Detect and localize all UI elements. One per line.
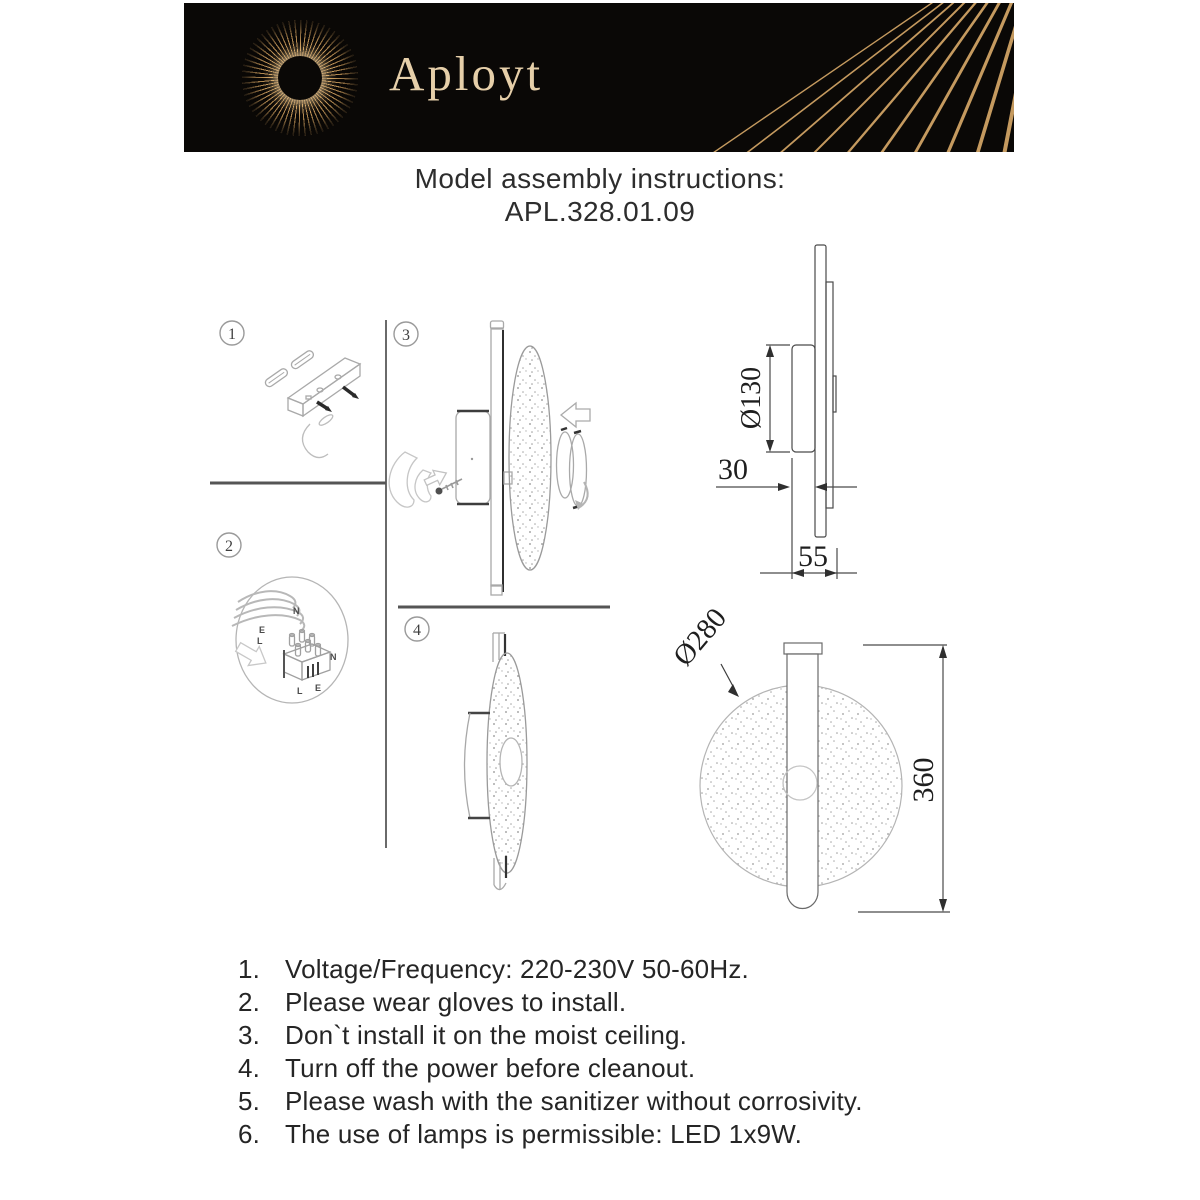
- wire-label-e: E: [259, 625, 265, 635]
- instruction-text: The use of lamps is permissible: LED 1x9…: [285, 1118, 802, 1151]
- dimension-shade-diameter: Ø280: [667, 602, 733, 672]
- panel-dividers: [210, 320, 610, 848]
- rays-decoration-icon: [704, 3, 1014, 152]
- instruction-text: Turn off the power before cleanout.: [285, 1052, 695, 1085]
- instruction-text: Voltage/Frequency: 220-230V 50-60Hz.: [285, 953, 749, 986]
- step-3-badge: 3: [394, 322, 418, 346]
- assembly-diagram: 1 3 2 4: [180, 230, 1020, 945]
- instruction-item: 5. Please wash with the sanitizer withou…: [238, 1085, 1018, 1118]
- instruction-sheet: Aployt Model assembly instructions: APL.…: [0, 0, 1200, 1200]
- tech-front-view: Ø280 360: [667, 602, 950, 912]
- instruction-item: 3. Don`t install it on the moist ceiling…: [238, 1019, 1018, 1052]
- model-number: APL.328.01.09: [0, 196, 1200, 228]
- svg-text:3: 3: [402, 327, 410, 344]
- instruction-number: 1.: [238, 953, 285, 986]
- step-4-diagram: [465, 633, 528, 890]
- step-4-badge: 4: [405, 617, 429, 641]
- dimension-depth-box: 30: [718, 453, 748, 486]
- instruction-item: 1. Voltage/Frequency: 220-230V 50-60Hz.: [238, 953, 1018, 986]
- step-1-badge: 1: [220, 321, 244, 345]
- instruction-text: Don`t install it on the moist ceiling.: [285, 1019, 687, 1052]
- instruction-text: Please wash with the sanitizer without c…: [285, 1085, 863, 1118]
- instruction-number: 6.: [238, 1118, 285, 1151]
- dimension-height: 360: [907, 758, 940, 803]
- step-3-diagram: [389, 321, 590, 595]
- svg-text:4: 4: [413, 622, 421, 639]
- instruction-item: 2. Please wear gloves to install.: [238, 986, 1018, 1019]
- terminal-label-n: N: [330, 652, 337, 662]
- step-2-badge: 2: [217, 533, 241, 557]
- step-1-diagram: [264, 349, 360, 457]
- page-title: Model assembly instructions:: [0, 163, 1200, 195]
- tech-side-view: Ø130 30 55: [716, 245, 857, 579]
- terminal-label-l: L: [297, 686, 303, 696]
- brand-header: Aployt: [184, 3, 1014, 152]
- instruction-number: 2.: [238, 986, 285, 1019]
- sunburst-logo-icon: [242, 20, 358, 136]
- svg-text:2: 2: [225, 538, 233, 555]
- brand-name: Aployt: [389, 45, 749, 102]
- instruction-number: 5.: [238, 1085, 285, 1118]
- dimension-mount-diameter: Ø130: [736, 367, 767, 429]
- step-2-diagram: N E L N L E: [232, 577, 348, 703]
- instruction-item: 4. Turn off the power before cleanout.: [238, 1052, 1018, 1085]
- instruction-number: 4.: [238, 1052, 285, 1085]
- instructions-list: 1. Voltage/Frequency: 220-230V 50-60Hz. …: [238, 953, 1018, 1151]
- instruction-item: 6. The use of lamps is permissible: LED …: [238, 1118, 1018, 1151]
- instruction-number: 3.: [238, 1019, 285, 1052]
- instruction-text: Please wear gloves to install.: [285, 986, 626, 1019]
- wire-label-n: N: [293, 606, 300, 616]
- svg-text:1: 1: [228, 326, 236, 343]
- wire-label-l: L: [257, 636, 263, 646]
- dimension-depth-total: 55: [798, 540, 828, 573]
- terminal-label-e: E: [315, 683, 321, 693]
